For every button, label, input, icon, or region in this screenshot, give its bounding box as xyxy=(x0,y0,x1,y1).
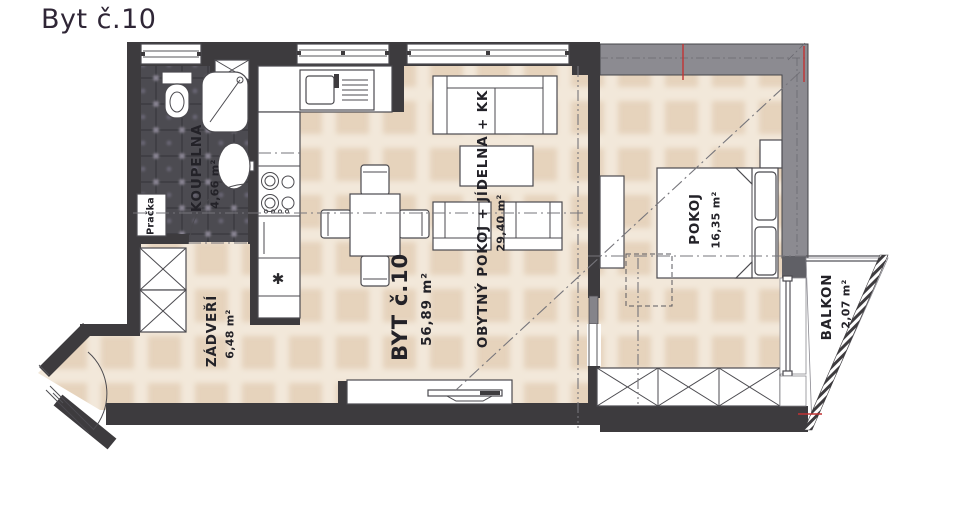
wall-bottom-living xyxy=(106,403,600,425)
page-title: Byt č.10 xyxy=(41,4,156,35)
label-pokoj: POKOJ xyxy=(687,193,703,245)
partition-sliding-door xyxy=(589,296,598,324)
washing-machine: Pračka xyxy=(137,194,166,236)
washer-label: Pračka xyxy=(146,197,157,235)
dining-table xyxy=(350,194,400,256)
bedroom-wardrobe xyxy=(597,368,780,406)
hall-wardrobe xyxy=(140,248,186,332)
label-zadveri: ZÁDVEŘÍ xyxy=(203,295,220,367)
chair xyxy=(361,256,389,286)
window-living xyxy=(407,44,569,64)
label-koupelna: KOUPELNA xyxy=(189,124,205,212)
label-koupelna-area: 4,66 m² xyxy=(209,159,222,208)
window-bathroom xyxy=(141,44,201,64)
wall-bottom-bedroom xyxy=(600,406,808,432)
dishwasher-symbol: ✱ xyxy=(272,270,285,288)
tv-bench xyxy=(347,380,512,404)
chair xyxy=(399,210,429,238)
coffee-table xyxy=(460,146,533,186)
label-zadveri-area: 6,48 m² xyxy=(224,309,237,358)
label-byt: BYT č.10 xyxy=(388,253,412,361)
nightstand xyxy=(760,140,782,168)
floorplan-page: Byt č.10 xyxy=(0,0,955,505)
partition-door-opening xyxy=(587,324,601,366)
label-pokoj-area: 16,35 m² xyxy=(710,191,723,248)
bedroom-desk xyxy=(600,176,624,268)
sofa xyxy=(433,76,557,134)
label-balkon: BALKON xyxy=(819,274,835,341)
label-byt-area: 56,89 m² xyxy=(419,272,435,346)
window-kitchen xyxy=(297,44,389,64)
floorplan-drawing: Pračka xyxy=(0,0,955,505)
chair xyxy=(361,165,389,195)
wall-left xyxy=(127,42,141,332)
label-obytny-pokoj-area: 29,40 m² xyxy=(495,194,508,251)
kitchen-sink-unit xyxy=(300,70,374,110)
armchair xyxy=(504,202,562,250)
wall-tv-stub xyxy=(338,381,347,405)
wall-counter-stub xyxy=(392,64,404,112)
chair xyxy=(321,210,351,238)
label-obytny-pokoj: OBYTNÝ POKOJ + JÍDELNA + KK xyxy=(473,90,491,348)
balcony-door xyxy=(780,276,806,406)
label-balkon-area: 2,07 m² xyxy=(840,279,853,328)
toilet xyxy=(162,72,192,118)
shower xyxy=(202,72,248,132)
